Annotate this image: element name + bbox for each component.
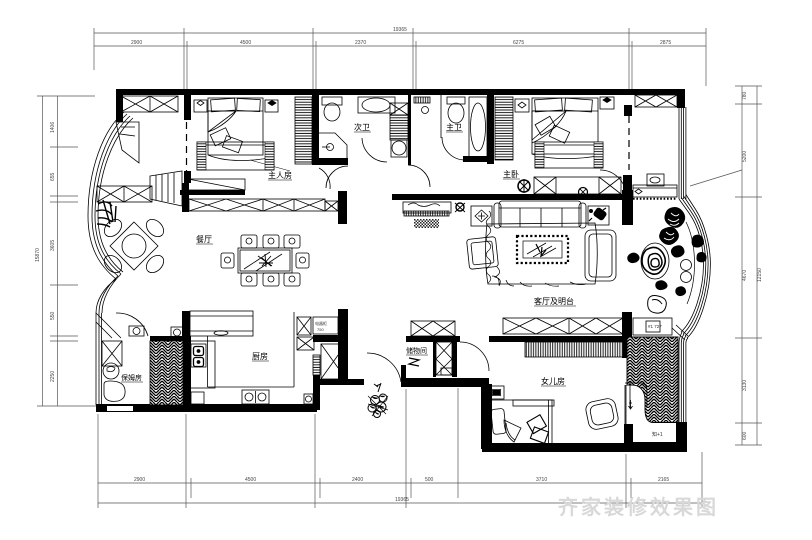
svg-text:2165: 2165: [658, 477, 669, 483]
svg-text:5200: 5200: [742, 151, 748, 162]
svg-text:750: 750: [317, 327, 324, 332]
svg-text:主卧: 主卧: [503, 169, 519, 179]
svg-text:客厅及明台: 客厅及明台: [534, 296, 574, 306]
svg-text:次卫: 次卫: [354, 122, 370, 132]
svg-text:4670: 4670: [742, 270, 748, 281]
svg-text:1406: 1406: [50, 122, 56, 133]
svg-text:3710: 3710: [536, 477, 547, 483]
svg-text:3130: 3130: [742, 380, 748, 391]
svg-text:19365: 19365: [395, 497, 409, 503]
svg-text:655: 655: [50, 172, 56, 181]
svg-text:15870: 15870: [35, 248, 41, 262]
svg-text:储物间: 储物间: [406, 346, 427, 355]
svg-text:2400: 2400: [352, 477, 363, 483]
svg-text:电器柜: 电器柜: [315, 320, 327, 326]
svg-text:12150: 12150: [757, 268, 763, 282]
svg-text:主卫: 主卫: [446, 122, 462, 132]
svg-text:4500: 4500: [240, 40, 251, 46]
svg-text:4500: 4500: [245, 477, 256, 483]
svg-text:2875: 2875: [660, 40, 671, 46]
svg-text:2900: 2900: [131, 40, 142, 46]
svg-text:女儿房: 女儿房: [541, 376, 565, 386]
svg-text:餐厅: 餐厅: [196, 235, 212, 244]
svg-text:厨房: 厨房: [252, 351, 268, 361]
svg-text:保姆房: 保姆房: [121, 373, 142, 382]
svg-text:知+1: 知+1: [652, 431, 663, 438]
svg-text:#1 727: #1 727: [648, 324, 662, 329]
svg-text:2250: 2250: [50, 371, 56, 382]
svg-text:2370: 2370: [355, 40, 366, 46]
svg-text:600: 600: [742, 431, 748, 440]
svg-text:齐家装修效果图: 齐家装修效果图: [558, 495, 719, 519]
svg-text:500: 500: [425, 477, 434, 483]
svg-text:6275: 6275: [513, 40, 524, 46]
svg-text:3605: 3605: [50, 240, 56, 251]
svg-text:19365: 19365: [393, 27, 407, 33]
svg-text:550: 550: [50, 311, 56, 320]
svg-text:780: 780: [742, 91, 748, 100]
svg-text:2900: 2900: [134, 477, 145, 483]
svg-text:主人房: 主人房: [268, 170, 292, 180]
